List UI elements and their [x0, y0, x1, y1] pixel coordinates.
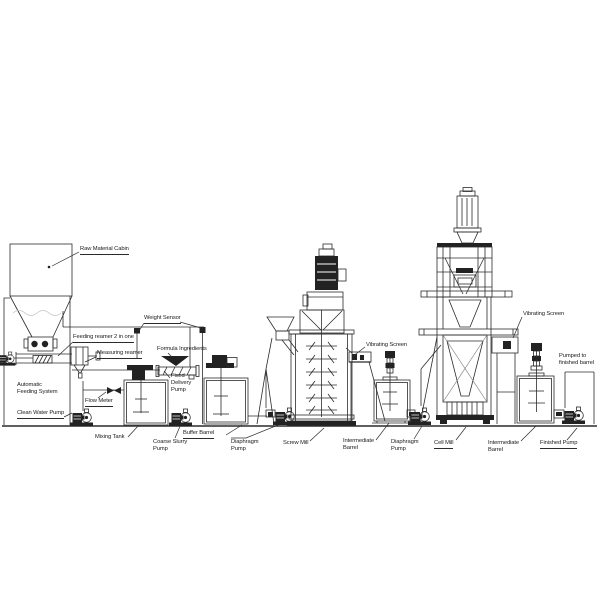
label-text: Feeding System — [17, 389, 58, 396]
label-text: Diaphragm — [231, 439, 258, 446]
label-text: Automatic — [17, 382, 58, 389]
label-diaphragm-pump-2: DiaphragmPump — [391, 439, 418, 453]
label-text: Pumped to — [559, 353, 594, 360]
label-text: finished barrel — [559, 360, 594, 367]
label-feeding-reamer: Feeding reamer 2 in one — [73, 334, 134, 343]
label-text: Mixing Tank — [95, 434, 124, 441]
label-text: Pump — [171, 387, 191, 394]
schematic-canvas: Raw Material CabinWeight SensorFeeding r… — [0, 0, 600, 600]
label-text: Flow Meter — [85, 398, 113, 407]
label-text: Coarse Slurry — [153, 439, 187, 446]
label-text: Barrel — [343, 445, 374, 452]
label-text: Pump — [153, 446, 187, 453]
label-text: Intermediate — [343, 438, 374, 445]
label-text: Diaphragm — [391, 439, 418, 446]
label-layer: Raw Material CabinWeight SensorFeeding r… — [0, 0, 600, 600]
label-automatic-feeding-system: AutomaticFeeding System — [17, 382, 58, 396]
label-clean-water-pump: Clean Water Pump — [17, 410, 64, 419]
label-text: Cell Mill — [434, 440, 453, 449]
label-text: Barrel — [488, 447, 519, 454]
label-text: Clean Water Pump — [17, 410, 64, 419]
label-flow-meter: Flow Meter — [85, 398, 113, 407]
label-text: Measuring reamer — [97, 350, 142, 359]
label-text: Fixed — [171, 373, 191, 380]
label-mixing-tank: Mixing Tank — [95, 434, 124, 441]
label-text: Vibrating Screen — [366, 342, 407, 349]
label-formula-ingredients: Formula Ingredients — [157, 346, 207, 353]
label-buffer-barrel: Buffer Barrel — [183, 430, 214, 439]
label-text: Pump — [231, 446, 258, 453]
label-text: Finished Pump — [540, 440, 577, 449]
label-screw-mill: Screw Mill — [283, 440, 308, 447]
label-raw-material-cabin: Raw Material Cabin — [80, 246, 129, 255]
label-vibrating-screen-1: Vibrating Screen — [366, 342, 407, 349]
label-text: Weight Sensor — [144, 315, 181, 324]
label-intermediate-barrel-1: IntermediateBarrel — [343, 438, 374, 452]
label-vibrating-screen-2: Vibrating Screen — [523, 311, 564, 318]
label-text: Feeding reamer 2 in one — [73, 334, 134, 343]
label-text: Screw Mill — [283, 440, 308, 447]
label-pumped-to-finished-barrel: Pumped tofinished barrel — [559, 353, 594, 367]
label-text: Intermediate — [488, 440, 519, 447]
label-weight-sensor: Weight Sensor — [144, 315, 181, 324]
label-intermediate-barrel-2: IntermediateBarrel — [488, 440, 519, 454]
label-text: Vibrating Screen — [523, 311, 564, 318]
label-text: Pump — [391, 446, 418, 453]
label-cell-mill: Cell Mill — [434, 440, 453, 449]
label-finished-pump: Finished Pump — [540, 440, 577, 449]
label-coarse-slurry-pump: Coarse SlurryPump — [153, 439, 187, 453]
label-fixed-delivery-pump: FixedDeliveryPump — [171, 373, 191, 394]
label-diaphragm-pump-1: DiaphragmPump — [231, 439, 258, 453]
label-text: Raw Material Cabin — [80, 246, 129, 255]
label-text: Delivery — [171, 380, 191, 387]
label-text: Buffer Barrel — [183, 430, 214, 439]
label-measuring-reamer: Measuring reamer — [97, 350, 142, 359]
label-text: Formula Ingredients — [157, 346, 207, 353]
